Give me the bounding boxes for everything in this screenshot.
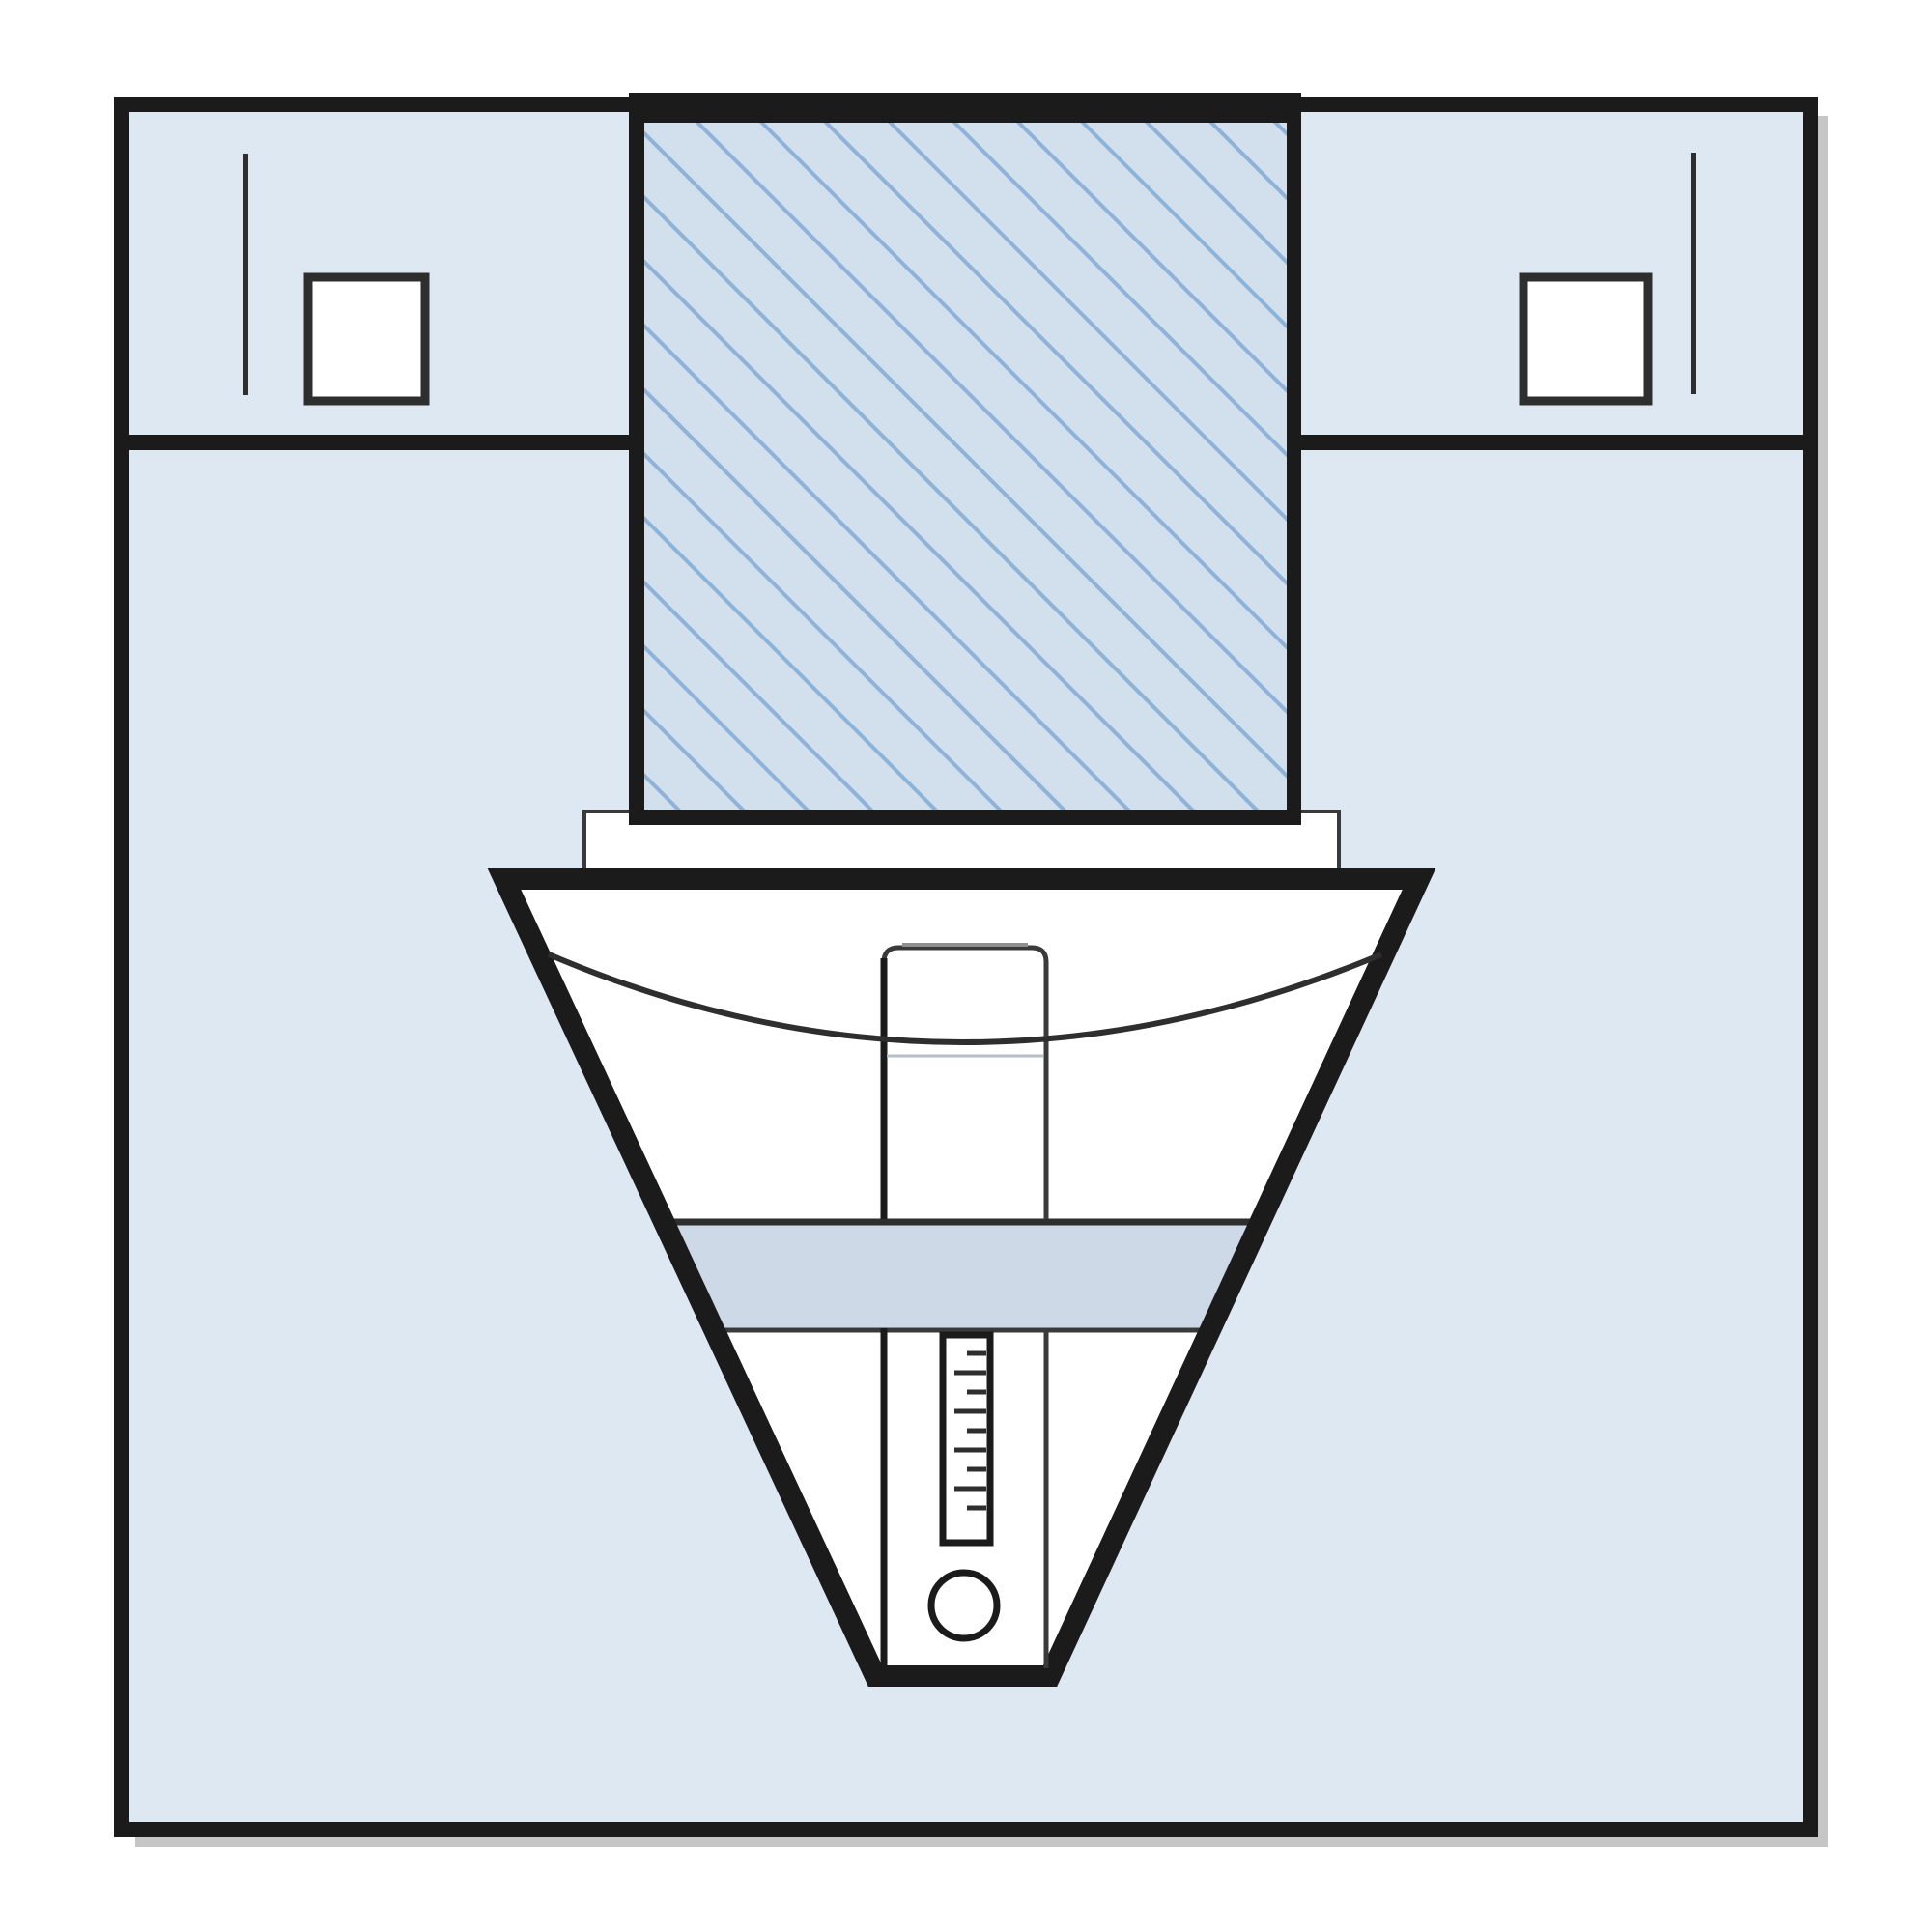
sight-circle <box>931 1573 997 1638</box>
funnel-band <box>663 1219 1261 1328</box>
left-panel-tick-line <box>243 154 248 395</box>
left-panel-square <box>308 277 425 401</box>
technical-diagram <box>0 0 1932 1932</box>
panel-divider-left <box>129 435 629 450</box>
hatched-block <box>644 123 1287 810</box>
diagram-canvas <box>0 0 1932 1932</box>
panel-divider-right <box>1301 435 1803 450</box>
right-panel-tick-line <box>1691 153 1696 394</box>
gauge-ruler <box>943 1335 990 1543</box>
right-panel-square <box>1523 277 1648 401</box>
